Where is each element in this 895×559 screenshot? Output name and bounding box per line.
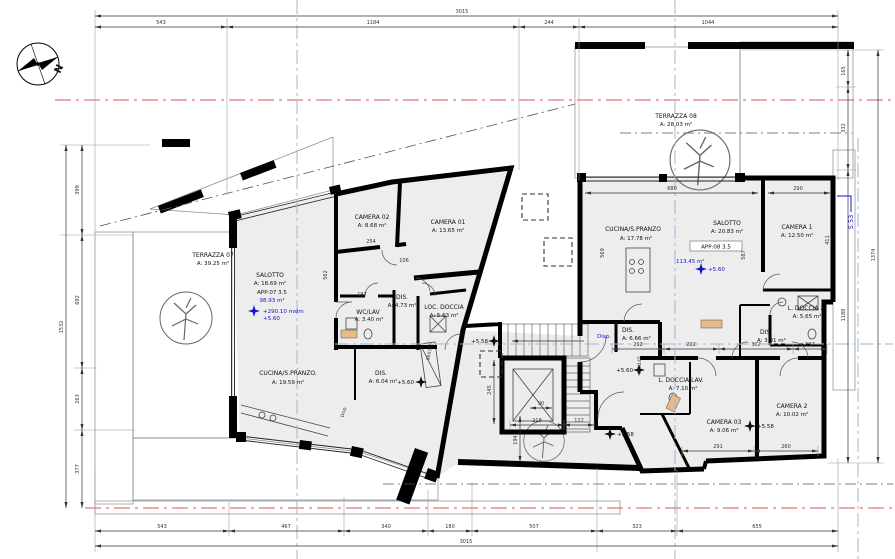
room-label-salotto-07: SALOTTO: [256, 272, 284, 279]
room-area-ldoccialav: A: 7.10 m²: [669, 385, 698, 392]
dim-i-106: 106: [399, 258, 409, 264]
dim-right-332: 332: [841, 123, 847, 133]
dim-left-399: 399: [75, 185, 81, 195]
dim-i-254: 254: [366, 239, 376, 245]
unit-area-08: 113.45 m²: [676, 258, 705, 265]
room-label-camera03: CAMERA 03: [707, 419, 742, 426]
level-08: +5.60: [708, 267, 725, 273]
room-area-salotto-07: A: 18.69 m²: [254, 280, 286, 287]
room-area-camera02: A: 8.68 m²: [358, 222, 387, 229]
room-label-cucina-08: CUCINA/S.PRANZO: [605, 226, 661, 233]
ground-stipple-right-strip: [833, 150, 855, 390]
room-label-camera01: CAMERA 01: [431, 219, 466, 226]
room-area-terrazza-08: A: 28.03 m²: [660, 121, 692, 128]
threshold-3: [341, 330, 357, 338]
parapet-terrace-08a: [575, 42, 645, 49]
tree-icon: [160, 292, 212, 344]
dim-i-218: 218: [532, 418, 542, 424]
north-compass-icon: N: [17, 43, 66, 85]
room-label-dis2-07: DIS.: [375, 370, 387, 377]
threshold-1: [701, 320, 722, 328]
dim-i-680: 680: [667, 186, 677, 192]
parapet-terrace-08b: [688, 42, 854, 49]
unit-id-08: APP:08 3.5: [701, 245, 731, 251]
dim-i-90: 90: [538, 401, 544, 407]
room-label-cucina-07: CUCINA/S.PRANZO.: [259, 370, 317, 377]
room-label-dis2-08: DIS.: [760, 329, 772, 336]
dim-top-total: 3015: [456, 9, 469, 15]
level-558-b: +5.58: [757, 424, 774, 430]
dim-i-587: 587: [741, 250, 747, 260]
disp-label-08: Disp.: [597, 334, 611, 340]
altitude-07: +290.10 mslm: [263, 309, 304, 315]
room-label-dis1-07: DIS.: [396, 294, 408, 301]
dim-right-total: 1374: [871, 249, 877, 262]
room-area-dis1-07: A: 4.73 m²: [388, 302, 417, 309]
glazing-07-left: [232, 248, 235, 396]
room-area-cucina-07: A: 19.59 m²: [272, 379, 304, 386]
level-558-a: +5.58: [471, 339, 488, 345]
dim-i-122: 122: [574, 418, 584, 424]
dim-bot-467: 467: [281, 524, 291, 530]
room-area-salotto-08: A: 20.83 m²: [711, 228, 743, 235]
level-dis2-07: +5.60: [397, 380, 414, 386]
dim-i-562: 562: [323, 270, 329, 280]
dim-left-377: 377: [75, 464, 81, 474]
dim-bot-655: 655: [752, 524, 762, 530]
room-label-terrazza-08: TERRAZZA 08: [654, 113, 697, 120]
room-area-terrazza-07: A: 39.25 m²: [197, 260, 229, 267]
section-marker: S.53: [837, 196, 855, 229]
dim-i-197: 197: [357, 292, 367, 298]
dim-right-165: 165: [841, 66, 847, 76]
room-area-wclav: A: 3.40 m²: [355, 316, 384, 323]
room-area-camera1: A: 12.50 m²: [781, 232, 813, 239]
room-label-camera02: CAMERA 02: [355, 214, 390, 221]
room-area-camera2: A: 10.02 m²: [776, 411, 808, 418]
dim-bot-340: 340: [381, 524, 391, 530]
room-label-camera2: CAMERA 2: [776, 403, 807, 410]
dim-i-569: 569: [600, 248, 606, 258]
room-area-camera01: A: 13.65 m²: [432, 227, 464, 234]
dim-right-1188: 1188: [841, 309, 847, 322]
room-area-dis1-08: A: 6.66 m²: [622, 335, 651, 342]
level-560-stairs: +5.60: [616, 368, 633, 374]
level-558-c: +5.58: [617, 432, 634, 438]
room-area-cucina-08: A: 17.78 m²: [620, 235, 652, 242]
dim-i-212: 212: [633, 342, 643, 348]
unit-id-07: APP:07 3.5: [257, 290, 287, 296]
dim-bot-323: 323: [632, 524, 642, 530]
dim-i-290: 290: [793, 186, 803, 192]
room-label-locdoccia: LOC. DOCCIA: [424, 304, 464, 311]
dim-top-1044: 1044: [702, 20, 715, 26]
room-label-dis1-08: DIS.: [622, 327, 634, 334]
section-marker-label: S.53: [847, 215, 855, 229]
dim-i-260: 260: [781, 444, 791, 450]
level-07: +5.60: [263, 316, 280, 322]
ground-stipple-left-strip: [95, 232, 133, 504]
room-area-ldoccia2: A: 5.65 m²: [793, 313, 822, 320]
room-label-salotto-08: SALOTTO: [713, 220, 741, 227]
dim-top-543: 543: [156, 20, 166, 26]
dim-top-244: 244: [544, 20, 554, 26]
dim-i-411: 411: [825, 235, 831, 245]
wall-chunk-tl: [162, 139, 190, 147]
dim-i-245: 245: [487, 385, 493, 395]
room-area-locdoccia: A: 5.63 m²: [430, 312, 459, 319]
room-label-ldoccialav: L. DOCCIA/LAV.: [658, 377, 703, 384]
room-area-dis2-08: A: 3.91 m²: [757, 337, 786, 344]
dim-i-291: 291: [713, 444, 723, 450]
unit-area-07: 98.93 m²: [259, 297, 284, 304]
room-label-ldoccia2: L. DOCCIA 2: [788, 305, 825, 312]
dim-top-1184: 1184: [367, 20, 380, 26]
dim-i-194: 194: [513, 435, 519, 445]
dim-left-263: 263: [75, 394, 81, 404]
dim-left-692: 692: [75, 295, 81, 305]
dim-bot-total: 3015: [460, 539, 473, 545]
dim-i-222: 222: [686, 342, 696, 348]
dim-left-total: 1532: [59, 321, 65, 334]
room-label-camera1: CAMERA 1: [781, 224, 812, 231]
room-area-dis2-07: A: 6.04 m²: [369, 378, 398, 385]
dim-bot-543: 543: [157, 524, 167, 530]
floor-plan-canvas: 3015 543 1184 244 1044 543 467 340 180 5…: [0, 0, 895, 559]
ground-stipple-top-right: [740, 42, 853, 178]
room-area-camera03: A: 9.06 m²: [710, 427, 739, 434]
dim-i-137: 137: [805, 342, 815, 348]
room-label-wclav: WC/LAV: [356, 309, 380, 316]
room-label-terrazza-07: TERRAZZA 07: [191, 252, 234, 259]
dim-bot-180: 180: [445, 524, 455, 530]
floor-plan-drawing: 3015 543 1184 244 1044 543 467 340 180 5…: [0, 0, 895, 559]
dim-bot-507: 507: [529, 524, 539, 530]
